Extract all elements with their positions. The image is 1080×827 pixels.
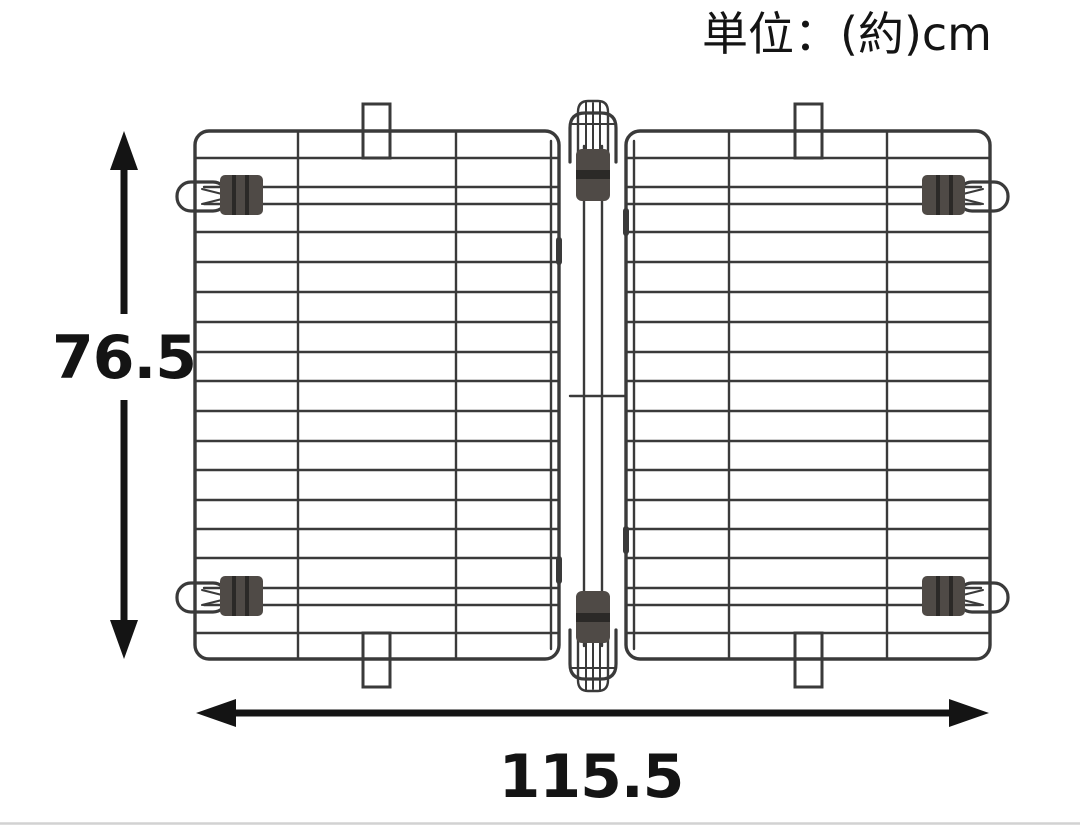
width-arrowhead-left-icon — [196, 699, 236, 727]
corner-clip-bottom — [220, 576, 263, 616]
height-dimension: 76.5 — [52, 131, 196, 659]
panel-vertical-wires — [298, 132, 551, 658]
height-arrowhead-up-icon — [110, 131, 138, 170]
panel-horizontal-wires — [195, 158, 559, 633]
height-dimension-label: 76.5 — [52, 323, 196, 393]
corner-clip-top — [220, 175, 263, 215]
mesh-panel-left — [177, 104, 559, 687]
diagram-canvas: 76.5 115.5 単位：(約)cm — [0, 0, 1080, 827]
width-dimension-label: 115.5 — [499, 742, 684, 812]
hinge-clip — [576, 149, 610, 201]
mesh-panel-right — [626, 104, 1008, 687]
hinge-end-top — [570, 101, 616, 201]
product-dimension-diagram: 76.5 115.5 単位：(約)cm — [0, 0, 1080, 827]
latch-rods — [204, 187, 559, 605]
hinge-end-bottom — [570, 591, 616, 691]
height-arrowhead-down-icon — [110, 620, 138, 659]
width-arrowhead-right-icon — [949, 699, 989, 727]
hinge-column — [556, 101, 629, 691]
width-dimension: 115.5 — [196, 699, 989, 812]
unit-note-label: 単位：(約)cm — [702, 7, 992, 61]
